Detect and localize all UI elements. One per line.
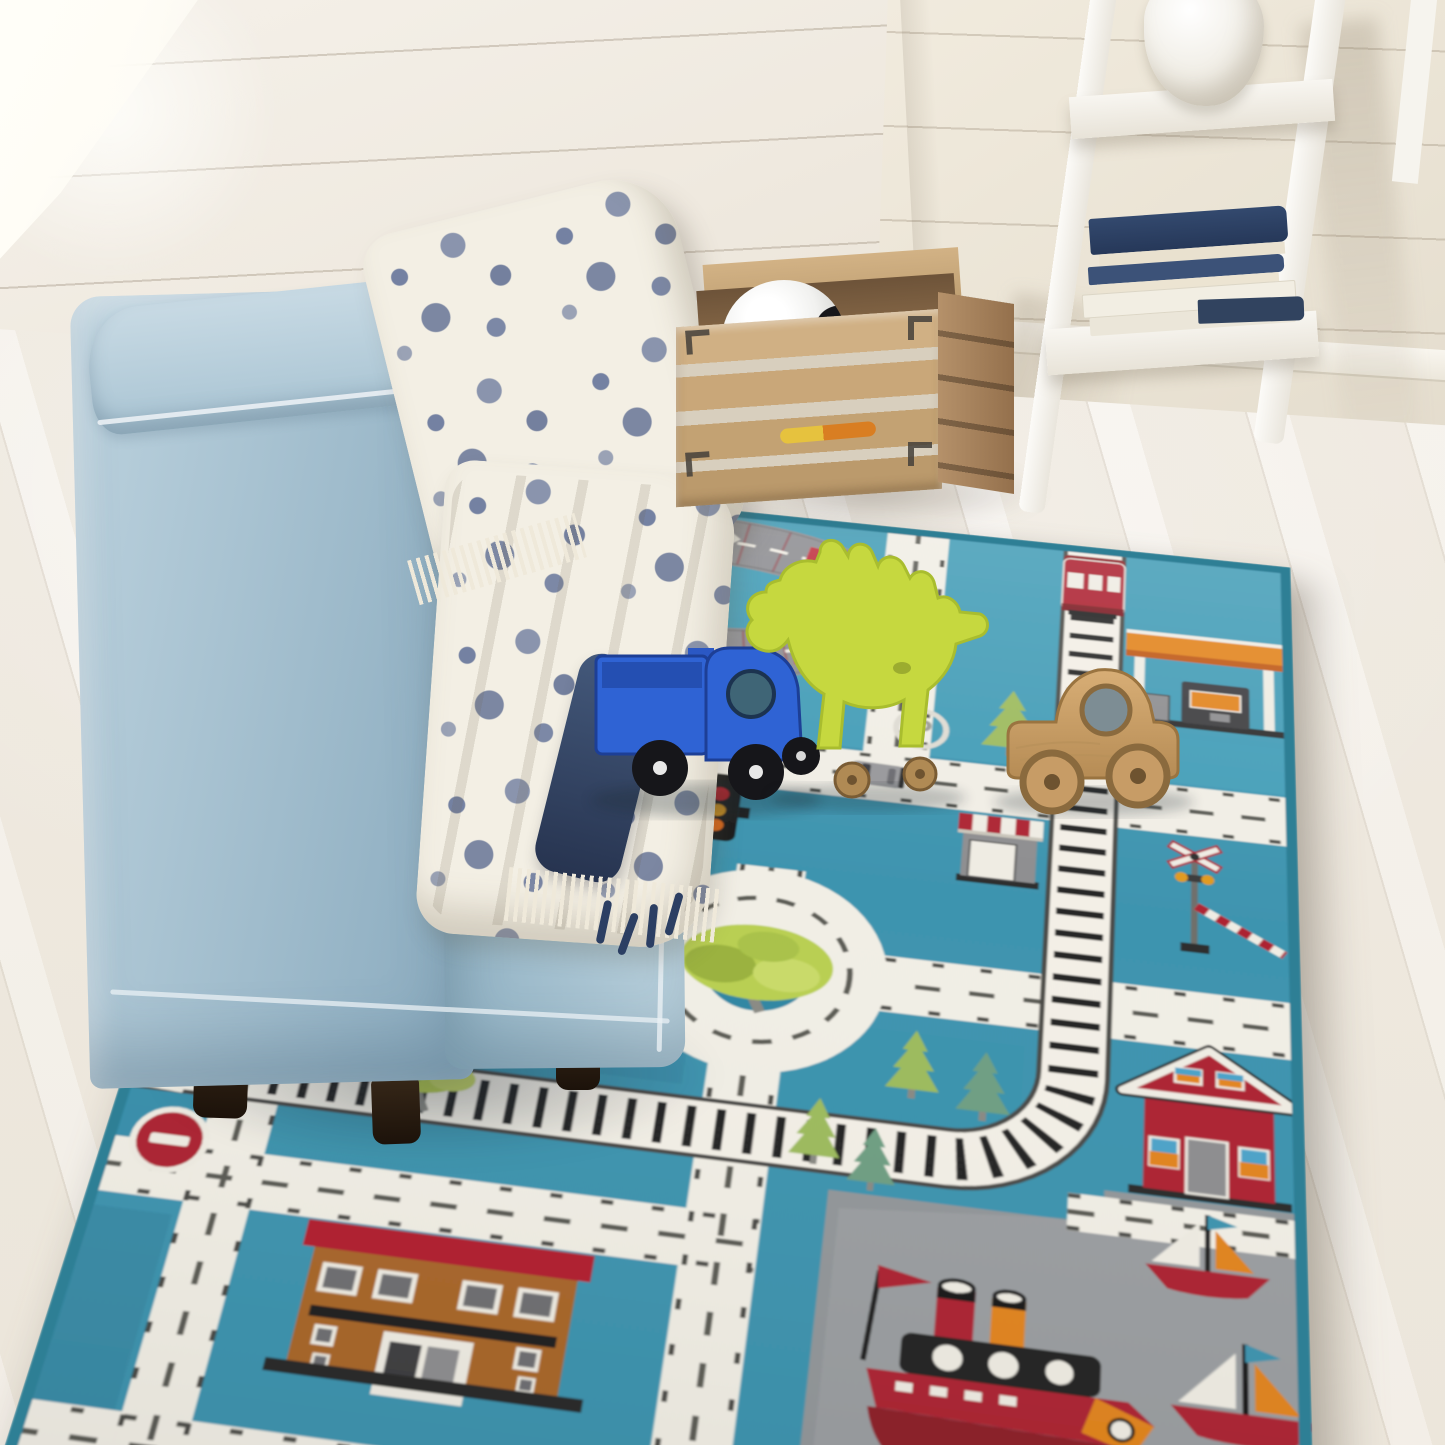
nursery-scene: P xyxy=(0,0,1445,1445)
crate-side xyxy=(938,292,1014,494)
navy-book-small xyxy=(1198,296,1305,324)
crate-front xyxy=(676,309,942,508)
crate-corner-bracket xyxy=(908,442,932,466)
crate-corner-bracket xyxy=(908,316,932,340)
chair-foot xyxy=(371,1077,421,1145)
crate-corner-bracket xyxy=(685,451,711,477)
crate-corner-bracket xyxy=(685,329,711,355)
